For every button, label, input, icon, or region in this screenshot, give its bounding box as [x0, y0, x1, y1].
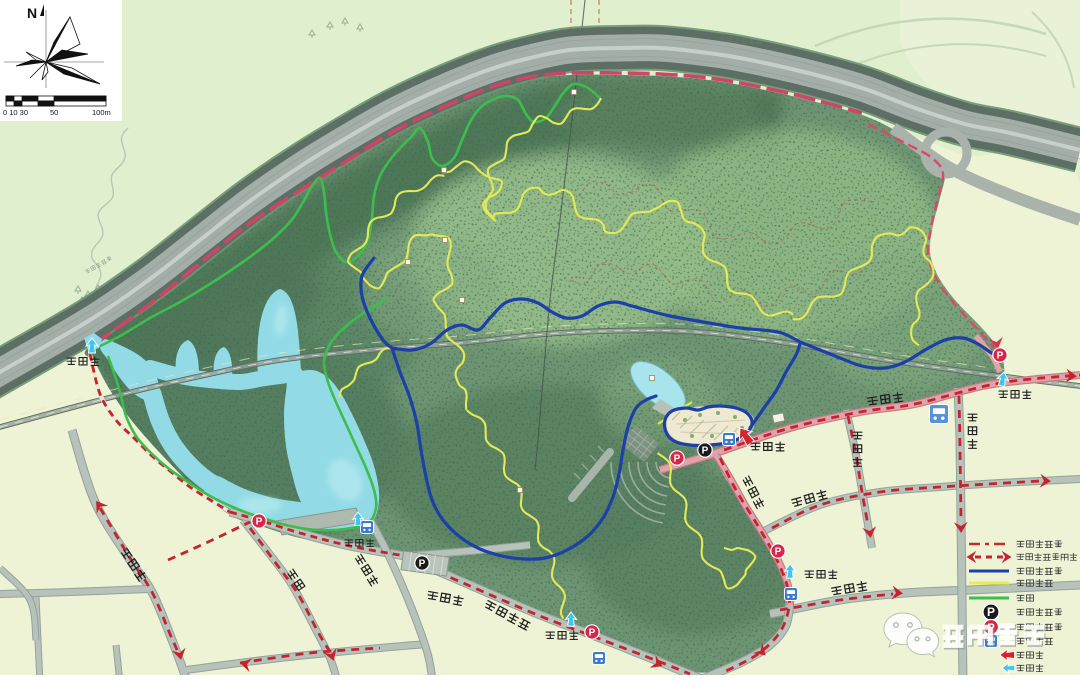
svg-text:P: P	[589, 628, 596, 639]
svg-text:P: P	[419, 559, 426, 570]
svg-text:P: P	[674, 454, 681, 465]
svg-text:50: 50	[50, 108, 58, 117]
svg-text:100m: 100m	[92, 108, 111, 117]
svg-text:P: P	[256, 517, 263, 528]
svg-text:P: P	[775, 547, 782, 558]
svg-text:P: P	[997, 351, 1004, 362]
svg-text:P: P	[702, 446, 709, 457]
svg-text:0 10 30: 0 10 30	[3, 108, 28, 117]
svg-text:N: N	[27, 5, 37, 21]
svg-text:P: P	[987, 605, 995, 619]
